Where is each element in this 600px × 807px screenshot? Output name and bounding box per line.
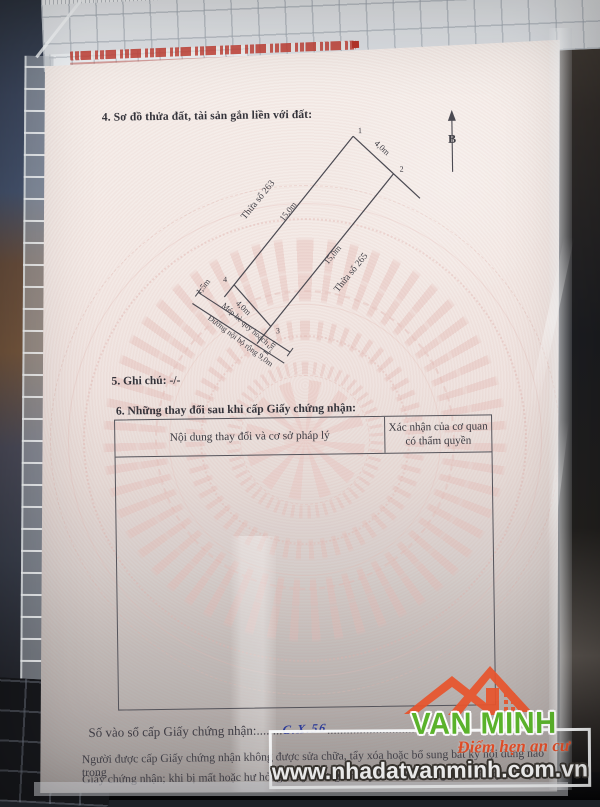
parcel-diagram: B 1 2 3 4 4,0m 15,0m 15,0m 4,0m 1,5m 1,5…: [162, 103, 496, 408]
point-4-label: 4: [223, 275, 227, 284]
sidewalk-tick-right: [287, 348, 293, 356]
right-parcel-label: Thửa số 265: [332, 251, 371, 295]
north-arrow-head: [448, 110, 456, 121]
point-1-label: 1: [358, 126, 362, 135]
left-setback-dimension: 1,5m: [194, 276, 213, 296]
section6-heading: 6. Những thay đổi sau khi cấp Giấy chứng…: [116, 401, 356, 417]
col-authority-header: Xác nhận của cơ quan có thẩm quyền: [385, 415, 491, 452]
brand-website: www.nhadatvanminh.com.vn: [266, 755, 594, 785]
section5-heading: 5. Ghi chú: -/-: [111, 374, 180, 388]
point-2-label: 2: [399, 165, 403, 174]
right-edge-dimension: 15,0m: [322, 243, 344, 266]
changes-table-header: Nội dung thay đổi và cơ sở pháp lý Xác n…: [115, 415, 491, 457]
left-parcel-label: Thửa số 263: [239, 178, 278, 222]
point-3-label: 3: [276, 326, 280, 335]
col-change-content-header: Nội dung thay đổi và cơ sở pháp lý: [115, 417, 385, 457]
folder-red-logo-dot: [352, 41, 359, 48]
register-number-label: Số vào sổ cấp Giấy chứng nhận:: [88, 723, 256, 740]
col-authority-header-line2: có thẩm quyền: [405, 434, 471, 449]
col-authority-header-line1: Xác nhận của cơ quan: [389, 419, 488, 434]
north-label: B: [448, 132, 456, 146]
left-edge-dimension: 15,0m: [277, 199, 299, 222]
top-edge-dimension: 4,0m: [373, 138, 393, 157]
